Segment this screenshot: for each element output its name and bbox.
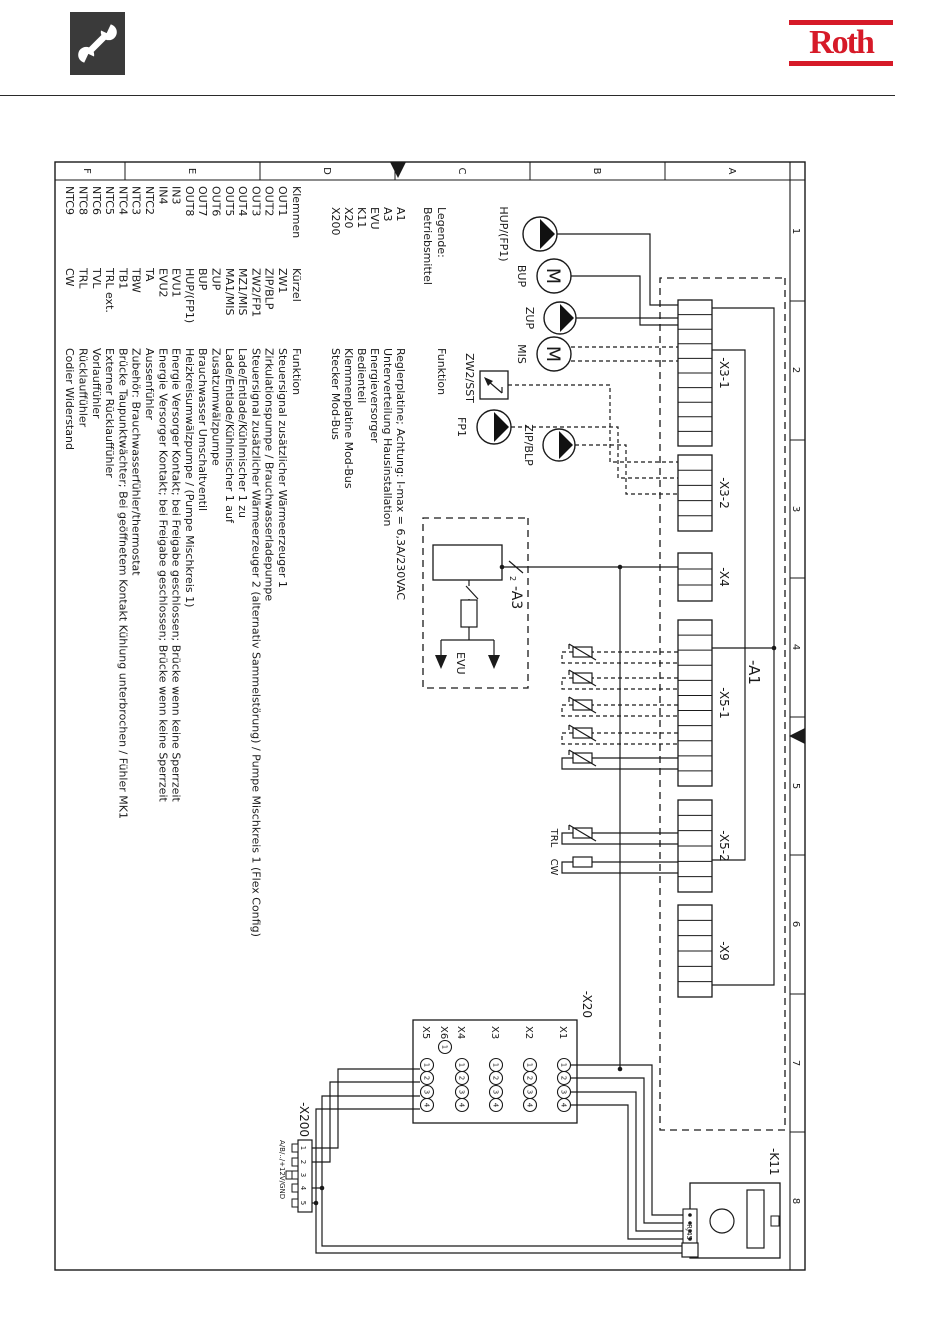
x20-row-label: X1 <box>557 1026 568 1039</box>
x20-pin-number: 4 <box>423 1103 431 1108</box>
a1-label: -A1 <box>745 660 763 685</box>
x20-pin-number: 1 <box>441 1045 449 1049</box>
x20-pin-number: 2 <box>492 1076 500 1080</box>
frame-letter: A <box>726 168 737 175</box>
x200-pin <box>292 1158 298 1166</box>
frame-number: 1 <box>790 228 801 234</box>
terminal-row-funktion: Heizkreisumwälzpumpe / (Pumpe Mischkreis… <box>183 348 196 607</box>
wire <box>312 1082 420 1162</box>
terminal-row-funktion: Brücke Taupunktwächter; Bei geöffnetem K… <box>116 348 129 819</box>
pump-label: MIS <box>515 344 528 364</box>
frame-number: 3 <box>790 506 801 512</box>
terminal-row-kurzel: TVL <box>90 267 103 289</box>
brand-logo: Roth <box>789 20 893 66</box>
fold-mark-icon <box>390 162 406 178</box>
terminal-row-klemme: OUT2 <box>263 186 276 216</box>
terminal-row-kurzel: ZW1 <box>276 268 289 293</box>
terminal-row-klemme: IN3 <box>170 186 183 204</box>
x20-row-label: X3 <box>489 1026 500 1039</box>
x20-row-label: X2 <box>523 1026 534 1039</box>
terminal-row-klemme: OUT6 <box>210 186 223 216</box>
terminal-row-funktion: Rücklauffühler <box>77 348 90 428</box>
frame-number: 4 <box>790 644 801 650</box>
x20-pin-number: 2 <box>423 1076 431 1080</box>
x20-pin-number: 2 <box>560 1076 568 1080</box>
frame-letter: E <box>186 168 197 174</box>
legend-device-funktion: Klemmenplatine Mod-Bus <box>342 348 355 489</box>
terminal-row-kurzel: MZ1/MIS <box>236 268 249 315</box>
coding-resistor-icon <box>573 857 592 867</box>
zw2-label: ZW2/SST <box>463 353 476 403</box>
legend-device-funktion: Stecker Mod-Bus <box>329 348 342 440</box>
x20-pin-number: 3 <box>560 1090 568 1094</box>
x20-pin-number: 4 <box>492 1103 500 1108</box>
frame-letter: F <box>81 168 92 174</box>
terminal-row-klemme: OUT1 <box>276 186 289 216</box>
x20-row-label: X6 <box>438 1026 449 1039</box>
connector-label: -X3-1 <box>717 357 731 389</box>
x200-pin <box>292 1199 298 1207</box>
wire <box>570 1092 697 1231</box>
connector-label: -X3-2 <box>717 477 731 509</box>
terminal-row-funktion: Zusatzumwälzpumpe <box>210 348 223 466</box>
pump-label: FP1 <box>455 417 468 437</box>
x200-label: -X200 <box>297 1102 311 1137</box>
terminal-row-klemme: NTC5 <box>103 186 116 215</box>
terminal-row-funktion: Aussenfühler <box>143 348 156 420</box>
frame-number: 6 <box>790 921 801 927</box>
terminal-row-klemme: OUT3 <box>249 186 262 216</box>
legend-device-funktion: Bedienteil <box>355 348 368 403</box>
terminal-row-klemme: OUT8 <box>183 186 196 216</box>
frame-letter: C <box>456 168 467 175</box>
terminal-row-kurzel: ZUP <box>210 268 223 291</box>
rotated-drawing: ABCDEF12345678Legende:BetriebsmittelFunk… <box>0 0 950 1344</box>
legend-device-label: EVU <box>368 207 381 230</box>
a3-relay-box <box>433 545 502 580</box>
terminal-row-klemme: IN4 <box>156 186 169 204</box>
x20-row-label: X4 <box>455 1026 466 1039</box>
x200-pin <box>292 1184 298 1192</box>
frame-letter: B <box>591 168 602 175</box>
rj45-label: RJ45 <box>685 1224 693 1240</box>
frame-number: 8 <box>790 1198 801 1204</box>
terminal-row-kurzel: TA <box>143 267 156 282</box>
wiring-diagram: ABCDEF12345678Legende:BetriebsmittelFunk… <box>0 0 950 1344</box>
legend-device-label: X200 <box>329 207 342 236</box>
terminal-row-klemme: NTC4 <box>116 186 129 215</box>
connector-strip <box>678 620 712 786</box>
k11-knob <box>710 1209 734 1233</box>
junction-dot <box>320 1186 325 1191</box>
wire <box>511 427 678 478</box>
pump-label: HUP/(FP1) <box>497 206 510 261</box>
x20-pin-number: 3 <box>492 1090 500 1094</box>
legend-col-kurzel: Kürzel <box>290 268 303 302</box>
zw2-contact-box <box>480 371 508 399</box>
a1-internal-bus <box>712 350 745 860</box>
terminal-row-klemme: NTC3 <box>130 186 143 215</box>
x20-pin-number: 1 <box>526 1063 534 1067</box>
terminal-row-kurzel: TBW <box>130 267 143 293</box>
pump-label: BUP <box>515 265 528 288</box>
connector-strip <box>678 455 712 531</box>
x20-pin-number: 1 <box>458 1063 466 1067</box>
terminal-row-funktion: Zirkulationspumpe / Brauchwasserladepump… <box>263 348 276 601</box>
evu-label: EVU <box>454 652 467 675</box>
terminal-row-kurzel: TB1 <box>116 267 129 289</box>
wrench-icon <box>70 12 125 75</box>
legend-funktion-header: Funktion <box>435 348 448 395</box>
wire <box>570 1105 697 1239</box>
junction-dot <box>314 1201 319 1206</box>
legend-device-funktion: Reglerplatine; Achtung: I-max = 6,3A/230… <box>394 348 407 600</box>
x20-pin-number: 4 <box>526 1103 534 1108</box>
junction-dot <box>500 565 505 570</box>
k11-display <box>747 1190 764 1248</box>
terminal-row-kurzel: TRL <box>77 267 90 289</box>
rj45-jack <box>682 1243 698 1257</box>
wire-count-label: 2 <box>508 576 517 581</box>
terminal-row-klemme: NTC6 <box>90 186 103 215</box>
terminal-row-kurzel: BUP <box>196 268 209 291</box>
terminal-row-klemme: NTC2 <box>143 186 156 215</box>
wire <box>570 1078 697 1223</box>
terminal-row-kurzel: HUP/(FP1) <box>183 268 196 323</box>
terminal-row-funktion: Lade/Entlade/Kühlmischer 1 auf <box>223 348 236 524</box>
legend-col-klemmen: Klemmen <box>290 186 303 238</box>
a1-internal-bus <box>712 308 774 985</box>
brand-name: Roth <box>809 24 873 61</box>
motor-m-glyph: M <box>542 346 564 362</box>
x200-pin-number: 3 <box>299 1173 307 1177</box>
frame-letter: D <box>321 167 332 175</box>
terminal-row-funktion: Energie Versorger Kontakt; bei Freigabe … <box>170 348 183 802</box>
terminal-row-funktion: Steuersignal zusätzlicher Wärmeerzeuger … <box>276 348 289 588</box>
x200-pin-number: 4 <box>299 1186 307 1191</box>
terminal-row-funktion: Externer Rücklauffühler <box>103 348 116 478</box>
legend-device-label: A3 <box>381 207 394 222</box>
connector-label: -X9 <box>717 941 731 961</box>
connector-label: -X5-1 <box>717 687 731 719</box>
x200-pin <box>292 1171 298 1179</box>
x20-pin-number: 1 <box>492 1063 500 1067</box>
frame-number: 7 <box>790 1060 801 1066</box>
terminal-row-kurzel: EVU2 <box>156 268 169 298</box>
legend-title: Betriebsmittel <box>421 207 434 285</box>
a3-switch-icon <box>466 586 478 599</box>
junction-dot <box>772 646 777 651</box>
legend-device-label: K11 <box>355 207 368 228</box>
junction-dot <box>618 1067 623 1072</box>
pump-label: ZUP <box>523 307 536 330</box>
k11-slot <box>771 1216 779 1226</box>
x20-pin-number: 3 <box>526 1090 534 1094</box>
a3-label: -A3 <box>508 586 524 609</box>
x200-note: A/B/../+12V/GND <box>278 1140 286 1199</box>
x200-jumper <box>286 1171 292 1179</box>
terminal-row-funktion: Vorlauffühler <box>90 348 103 419</box>
terminal-row-klemme: OUT7 <box>196 186 209 216</box>
legend-device-label: X20 <box>342 207 355 229</box>
k11-label: -K11 <box>767 1148 781 1175</box>
pump-label: ZIP/BLP <box>522 424 535 466</box>
fold-mark-icon <box>789 728 805 744</box>
terminal-row-funktion: Energie Versorger Kontakt; bei Freigabe … <box>156 348 169 802</box>
legend-device-funktion: Energieversorger <box>368 348 381 443</box>
x20-pin-number: 1 <box>560 1063 568 1067</box>
terminal-row-funktion: Brauchwasser Umschaltventil <box>196 348 209 511</box>
terminal-row-klemme: OUT5 <box>223 186 236 216</box>
wire <box>316 1109 682 1253</box>
wire <box>575 445 678 494</box>
terminal-row-kurzel: TRL ext. <box>103 267 116 313</box>
terminal-row-klemme: NTC9 <box>63 186 76 215</box>
terminal-row-klemme: OUT4 <box>236 186 249 216</box>
x200-pin-number: 1 <box>299 1146 307 1150</box>
x20-pin-number: 3 <box>423 1090 431 1094</box>
x20-pin-number: 4 <box>560 1103 568 1108</box>
x20-pin-number: 4 <box>458 1103 466 1108</box>
x20-row-label: X5 <box>420 1026 431 1039</box>
x20-label: -X20 <box>580 991 594 1018</box>
terminal-row-kurzel: ZIP/BLP <box>263 268 276 310</box>
terminal-row-kurzel: ZW2/FP1 <box>249 268 262 317</box>
x20-pin-number: 1 <box>423 1063 431 1067</box>
legend-device-funktion: Unterverteilung Hausinstallation <box>381 348 394 527</box>
k11-box <box>690 1183 780 1258</box>
x20-pin-number: 3 <box>458 1090 466 1094</box>
terminal-row-funktion: Codier Widerstand <box>63 348 76 450</box>
terminal-row-funktion: Steuersignal zusätzlicher Wärmeerzeuger … <box>249 348 262 937</box>
connector-label: -X5-2 <box>717 830 731 862</box>
x200-pin <box>292 1144 298 1152</box>
terminal-row-kurzel: CW <box>63 268 76 287</box>
frame-number: 2 <box>790 367 801 373</box>
terminal-row-funktion: Lade/Entlade/Kühlmischer 1 zu <box>236 348 249 518</box>
header-divider <box>0 95 895 96</box>
connector-label: -X4 <box>717 567 731 587</box>
page-header: Roth <box>0 0 950 100</box>
x200-pin-number: 2 <box>299 1160 307 1164</box>
terminal-row-kurzel: MA1/MIS <box>223 268 236 315</box>
k11-pin <box>688 1213 692 1217</box>
evu-arrow-icon <box>488 655 500 669</box>
wire <box>570 1065 697 1215</box>
legend-title: Legende: <box>435 207 448 258</box>
terminal-row-kurzel: EVU1 <box>170 268 183 298</box>
terminal-row-klemme: NTC8 <box>77 186 90 215</box>
sensor-label: TRL <box>548 828 559 848</box>
frame-number: 5 <box>790 783 801 789</box>
connector-strip <box>678 553 712 601</box>
x200-pin-number: 5 <box>299 1201 307 1205</box>
legend-device-label: A1 <box>394 207 407 222</box>
terminal-row-funktion: Zubehör: Brauchwasserfühler/thermostat <box>130 348 143 576</box>
motor-m-glyph: M <box>542 268 564 284</box>
legend-col-funktion: Funktion <box>290 348 303 395</box>
sensor-label: CW <box>548 859 559 876</box>
x20-pin-number: 2 <box>526 1076 534 1080</box>
evu-arrow-icon <box>435 655 447 669</box>
a3-coil-box <box>461 600 477 627</box>
x20-pin-number: 2 <box>458 1076 466 1080</box>
